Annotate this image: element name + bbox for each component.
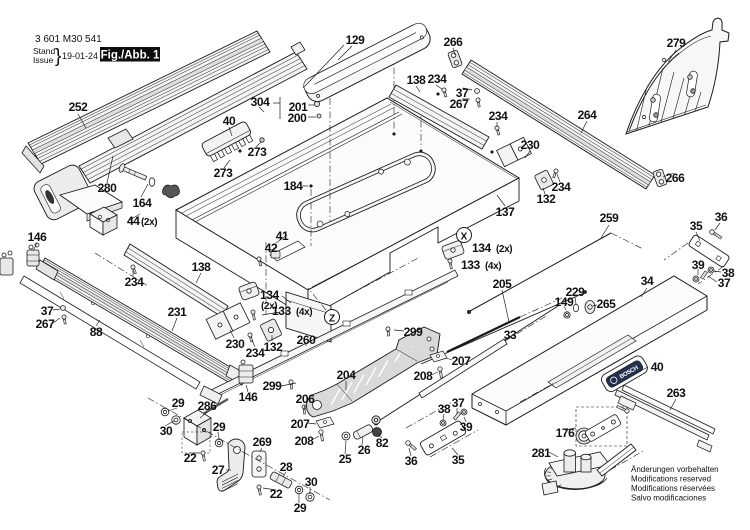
svg-text:252: 252 <box>69 100 89 114</box>
svg-text:39: 39 <box>692 258 705 272</box>
svg-text:208: 208 <box>414 369 434 383</box>
svg-text:30: 30 <box>305 475 318 489</box>
svg-text:265: 265 <box>597 297 617 311</box>
svg-text:234: 234 <box>489 109 509 123</box>
svg-text:37: 37 <box>452 396 465 410</box>
svg-text:263: 263 <box>667 386 687 400</box>
svg-text:176: 176 <box>556 426 576 440</box>
svg-text:35: 35 <box>690 219 703 233</box>
svg-text:(2x): (2x) <box>496 244 512 255</box>
svg-text:29: 29 <box>294 501 307 515</box>
svg-text:234: 234 <box>246 346 266 360</box>
svg-text:132: 132 <box>537 192 557 206</box>
svg-text:132: 132 <box>264 340 284 354</box>
svg-text:25: 25 <box>339 452 352 466</box>
svg-text:273: 273 <box>214 166 234 180</box>
svg-text:22: 22 <box>184 451 197 465</box>
svg-text:38: 38 <box>438 402 451 416</box>
svg-text:231: 231 <box>168 305 188 319</box>
svg-text:40: 40 <box>223 114 236 128</box>
svg-text:204: 204 <box>337 368 357 382</box>
svg-text:184: 184 <box>284 179 304 193</box>
svg-text:273: 273 <box>248 145 268 159</box>
svg-text:134: 134 <box>472 241 492 255</box>
svg-text:266: 266 <box>666 171 686 185</box>
svg-text:}: } <box>55 46 61 67</box>
svg-text:Modifications reserved: Modifications reserved <box>631 475 711 484</box>
svg-text:280: 280 <box>98 181 118 195</box>
svg-text:36: 36 <box>715 210 728 224</box>
svg-text:40: 40 <box>651 360 664 374</box>
svg-text:44: 44 <box>127 214 140 228</box>
svg-text:Modifications réservées: Modifications réservées <box>631 484 715 493</box>
svg-text:304: 304 <box>251 95 271 109</box>
svg-text:146: 146 <box>28 230 48 244</box>
svg-text:35: 35 <box>452 453 465 467</box>
svg-text:37: 37 <box>41 304 54 318</box>
svg-text:230: 230 <box>226 337 246 351</box>
svg-text:269: 269 <box>253 435 273 449</box>
svg-text:234: 234 <box>428 72 448 86</box>
svg-text:27: 27 <box>212 463 225 477</box>
svg-text:36: 36 <box>405 454 418 468</box>
svg-text:267: 267 <box>36 317 56 331</box>
svg-text:234: 234 <box>125 275 145 289</box>
svg-text:264: 264 <box>578 108 598 122</box>
svg-text:299: 299 <box>263 379 283 393</box>
svg-text:Issue: Issue <box>33 55 54 65</box>
svg-text:37: 37 <box>718 276 731 290</box>
svg-text:267: 267 <box>450 97 470 111</box>
svg-text:149: 149 <box>555 295 575 309</box>
svg-text:29: 29 <box>213 420 226 434</box>
svg-text:286: 286 <box>198 399 218 413</box>
svg-text:30: 30 <box>160 424 173 438</box>
svg-text:208: 208 <box>295 434 315 448</box>
svg-text:137: 137 <box>496 205 516 219</box>
svg-text:26: 26 <box>358 443 371 457</box>
svg-text:200: 200 <box>288 111 308 125</box>
svg-text:Z: Z <box>329 314 335 325</box>
svg-text:279: 279 <box>667 36 687 50</box>
svg-text:164: 164 <box>133 196 153 210</box>
svg-text:28: 28 <box>280 460 293 474</box>
svg-text:82: 82 <box>376 436 389 450</box>
svg-text:88: 88 <box>90 325 103 339</box>
svg-text:34: 34 <box>641 274 654 288</box>
svg-text:29: 29 <box>172 396 185 410</box>
svg-text:Fig./Abb. 1: Fig./Abb. 1 <box>101 50 160 62</box>
svg-text:(2x): (2x) <box>141 217 157 228</box>
svg-text:(4x): (4x) <box>296 307 312 318</box>
svg-text:259: 259 <box>600 211 620 225</box>
svg-text:206: 206 <box>296 392 316 406</box>
svg-text:129: 129 <box>346 33 366 47</box>
svg-text:3 601 M30 541: 3 601 M30 541 <box>35 34 102 45</box>
svg-text:230: 230 <box>521 138 541 152</box>
svg-text:207: 207 <box>291 417 311 431</box>
svg-text:138: 138 <box>407 73 427 87</box>
svg-text:Salvo modificaciones: Salvo modificaciones <box>631 494 706 503</box>
svg-text:Änderungen vorbehalten: Änderungen vorbehalten <box>631 465 719 474</box>
svg-text:33: 33 <box>504 328 517 342</box>
svg-text:207: 207 <box>452 354 472 368</box>
svg-text:281: 281 <box>532 446 552 460</box>
svg-text:138: 138 <box>192 260 212 274</box>
svg-text:22: 22 <box>270 487 283 501</box>
svg-text:299: 299 <box>404 325 424 339</box>
svg-text:134: 134 <box>260 288 280 302</box>
svg-text:39: 39 <box>460 420 473 434</box>
svg-text:19-01-24: 19-01-24 <box>62 51 98 61</box>
svg-text:260: 260 <box>297 333 317 347</box>
svg-text:146: 146 <box>239 390 259 404</box>
svg-text:266: 266 <box>444 35 464 49</box>
svg-text:(4x): (4x) <box>485 261 501 272</box>
svg-text:41: 41 <box>276 229 289 243</box>
svg-text:205: 205 <box>493 277 513 291</box>
svg-text:133: 133 <box>272 304 292 318</box>
svg-text:42: 42 <box>265 241 278 255</box>
svg-text:X: X <box>461 232 468 243</box>
svg-text:133: 133 <box>461 258 481 272</box>
